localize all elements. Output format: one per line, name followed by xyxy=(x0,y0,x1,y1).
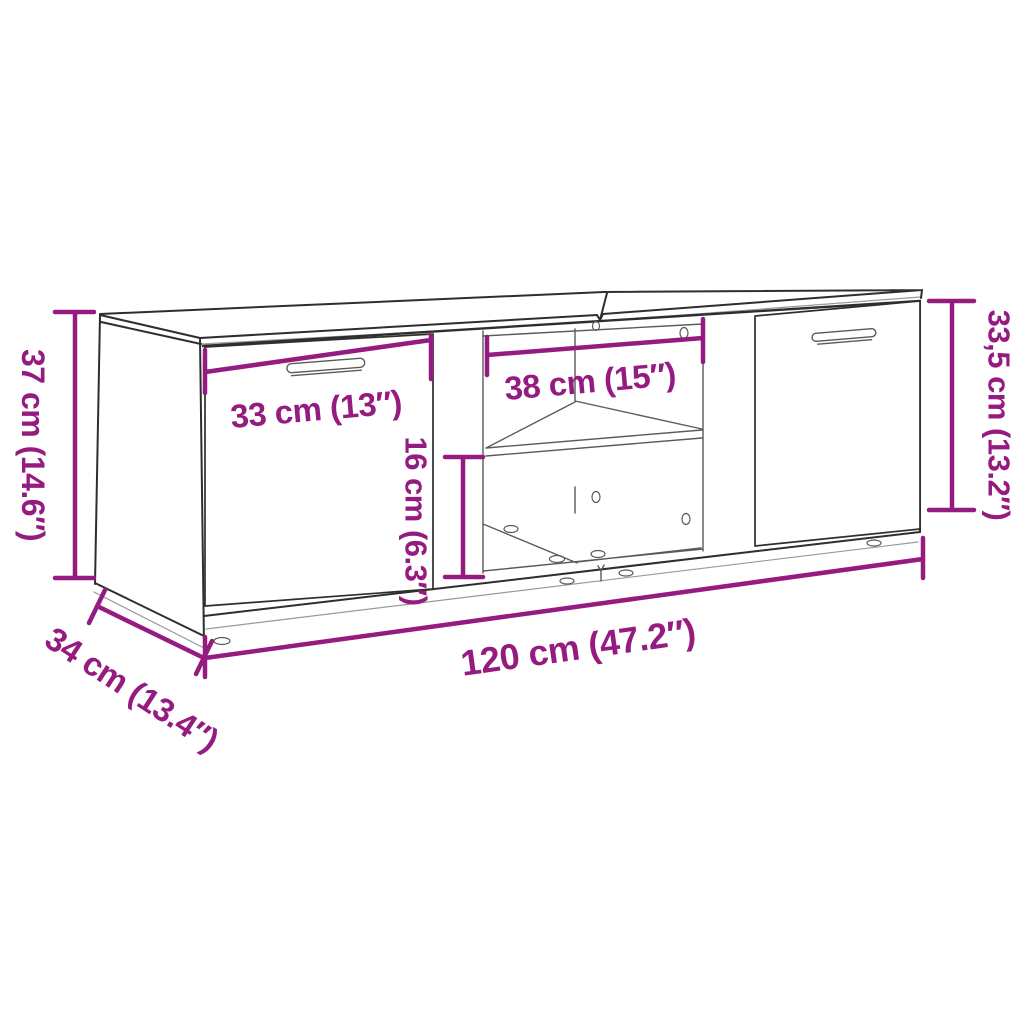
middle-shelf xyxy=(486,401,702,456)
dim-label-overall-height: 37 cm (14.6″) xyxy=(15,349,51,541)
dim-line-door-height xyxy=(929,301,974,510)
dim-label-depth: 34 cm (13.4″) xyxy=(39,619,225,758)
cabinet-drawing xyxy=(94,290,922,648)
dim-label-overall-width: 120 cm (47.2″) xyxy=(458,610,698,684)
dim-line-shelf-height xyxy=(445,457,483,577)
dim-label-shelf-height: 16 cm (6.3″) xyxy=(399,436,434,605)
dim-line-overall-height xyxy=(55,312,94,578)
diagram-canvas: 37 cm (14.6″) 33 cm (13″) 38 cm (15″) 16… xyxy=(0,0,1024,1024)
dim-label-door-height: 33,5 cm (13.2″) xyxy=(982,310,1017,521)
dim-label-shelf-width: 38 cm (15″) xyxy=(503,355,677,407)
left-side-panel xyxy=(95,315,204,645)
